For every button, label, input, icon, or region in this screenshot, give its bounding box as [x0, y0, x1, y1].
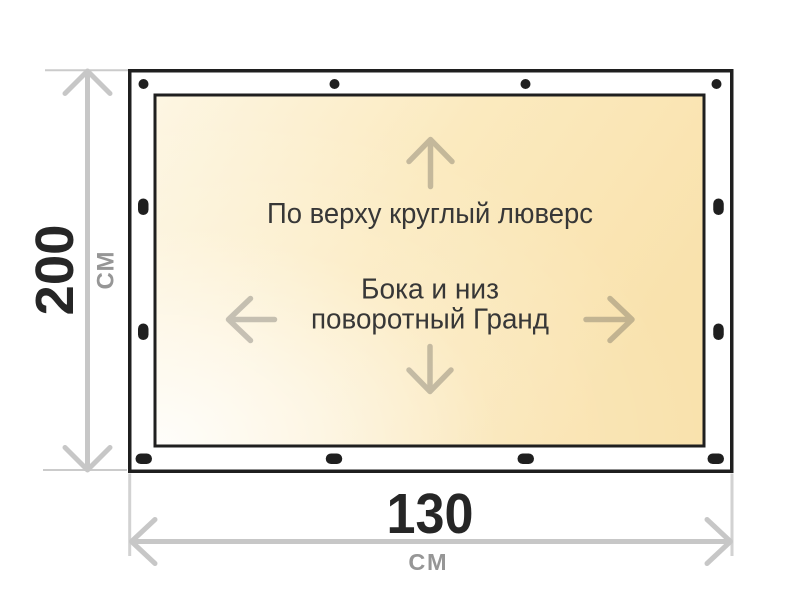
svg-text:200: 200	[25, 225, 85, 316]
svg-text:Бока и низ: Бока и низ	[361, 274, 499, 306]
svg-text:СМ: СМ	[93, 250, 120, 289]
svg-text:По верху круглый люверс: По верху круглый люверс	[267, 198, 593, 230]
svg-text:130: 130	[387, 482, 474, 546]
svg-text:СМ: СМ	[408, 549, 448, 575]
svg-text:поворотный Гранд: поворотный Гранд	[311, 304, 549, 336]
